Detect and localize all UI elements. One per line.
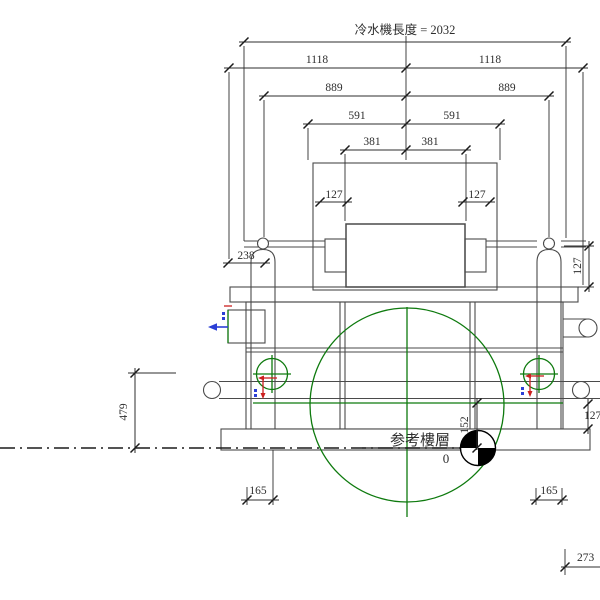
chiller-elevation-drawing: 参考樓層 0 bbox=[0, 0, 600, 600]
upper-body bbox=[313, 163, 497, 290]
left-connector-circle bbox=[253, 355, 291, 393]
dim-152: 152 bbox=[459, 416, 471, 434]
dim-381-left: 381 bbox=[363, 136, 381, 148]
chiller-length-title: 冷水機長度 = 2032 bbox=[355, 22, 456, 37]
dim-591-right: 591 bbox=[443, 110, 461, 122]
left-riser-cap bbox=[258, 238, 269, 249]
right-connector-circle bbox=[520, 355, 558, 393]
left-axis-marker bbox=[258, 376, 277, 400]
right-lower-pipe-end bbox=[573, 382, 590, 399]
dim-889-right: 889 bbox=[498, 82, 516, 94]
dim-1118-right: 1118 bbox=[479, 54, 501, 66]
left-connection-box bbox=[325, 239, 346, 272]
dim-381-right: 381 bbox=[421, 136, 439, 148]
right-connection-box bbox=[465, 239, 486, 272]
dim-127-top-left: 127 bbox=[325, 189, 343, 201]
dim-127-right-upper: 127 bbox=[572, 257, 584, 275]
dim-479: 479 bbox=[118, 403, 130, 421]
dim-591-left: 591 bbox=[348, 110, 366, 122]
cad-canvas: 参考樓層 0 bbox=[0, 0, 600, 600]
top-pipes bbox=[244, 241, 586, 247]
dim-165-right: 165 bbox=[540, 485, 558, 497]
dim-127-right-lower: 127 bbox=[584, 410, 600, 422]
dim-238: 238 bbox=[237, 250, 255, 262]
right-upper-pipe-end bbox=[579, 319, 597, 337]
reference-level-value: 0 bbox=[443, 451, 450, 466]
dim-1118-left: 1118 bbox=[306, 54, 328, 66]
lower-body bbox=[246, 302, 563, 429]
dimension-lines bbox=[135, 42, 600, 567]
dim-127-top-right: 127 bbox=[468, 189, 486, 201]
lower-body-rails bbox=[246, 348, 563, 352]
reference-level-label: 参考樓層 bbox=[390, 432, 450, 449]
right-riser bbox=[537, 250, 561, 430]
left-axis-marker-dots bbox=[254, 389, 257, 397]
box-corner-marker bbox=[222, 306, 232, 320]
right-axis-marker-dots bbox=[521, 387, 524, 395]
flow-arrow bbox=[208, 323, 228, 331]
right-riser-cap bbox=[544, 238, 555, 249]
dimension-texts: 冷水機長度 = 2032 1118 1118 889 889 591 591 3… bbox=[118, 22, 600, 564]
green-centerlines bbox=[228, 307, 563, 517]
dim-165-left: 165 bbox=[249, 485, 267, 497]
left-riser bbox=[251, 250, 275, 430]
dim-889-left: 889 bbox=[325, 82, 343, 94]
mounting-rail bbox=[230, 287, 578, 302]
front-panel bbox=[346, 224, 465, 287]
left-pipe-end bbox=[204, 382, 221, 399]
chiller-machine bbox=[204, 163, 600, 450]
dim-273: 273 bbox=[577, 552, 595, 564]
